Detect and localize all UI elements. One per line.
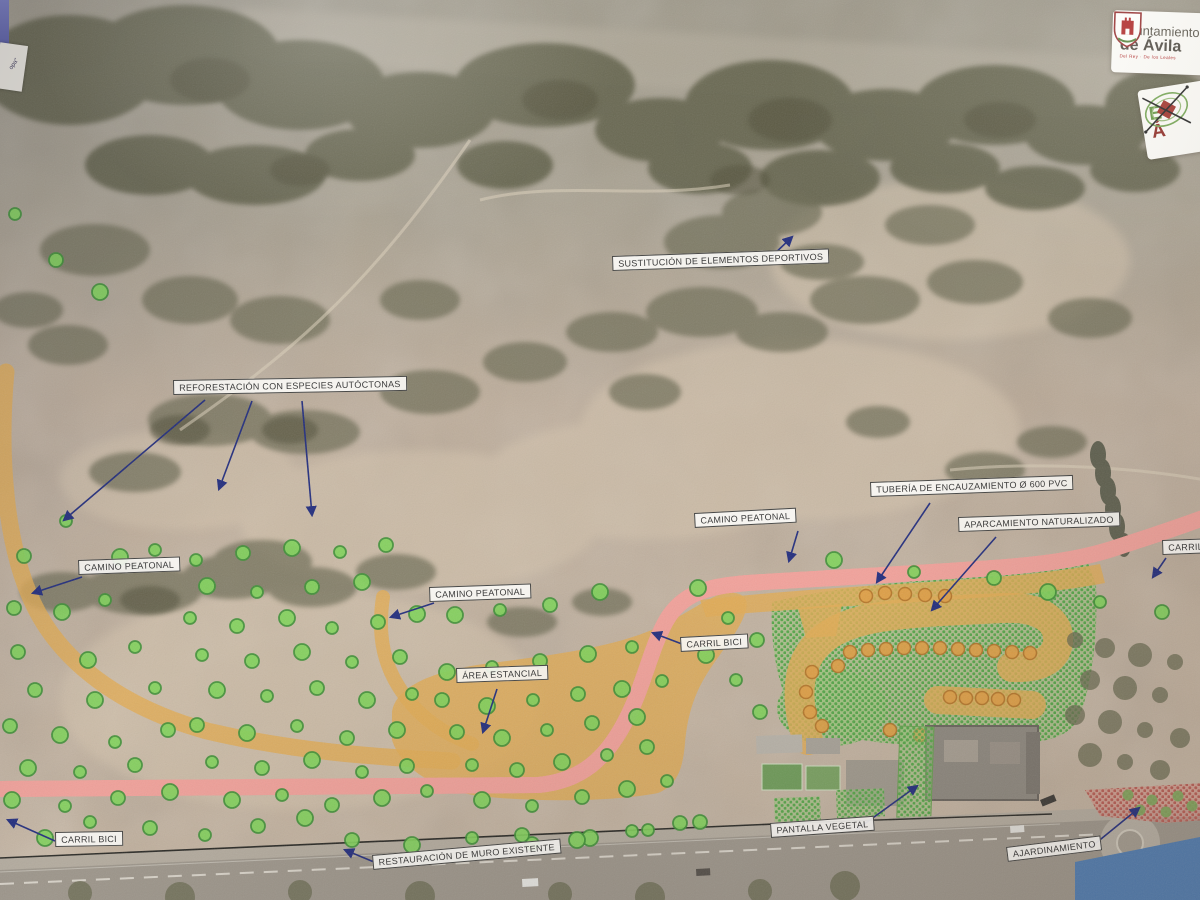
- avila-shield-icon: [1112, 10, 1143, 49]
- map-label-carril-bici-izquierda: CARRIL BICI: [55, 831, 123, 847]
- aerial-map: [0, 0, 1200, 900]
- map-label-carril-bici-derecha: CARRIL BICI: [1162, 538, 1200, 555]
- badge-logo-icon: [1137, 83, 1196, 137]
- map-photo: SUSTITUCIÓN DE ELEMENTOS DEPORTIVOSREFOR…: [0, 0, 1200, 900]
- photo-grain: [0, 0, 1200, 900]
- ayuntamiento-logo-card: Ayuntamiento de Ávila Del Rey · De los L…: [1111, 10, 1200, 78]
- map-label-area-estancial: ÁREA ESTANCIAL: [456, 665, 548, 683]
- paper-fragment-text: opa": [8, 44, 28, 71]
